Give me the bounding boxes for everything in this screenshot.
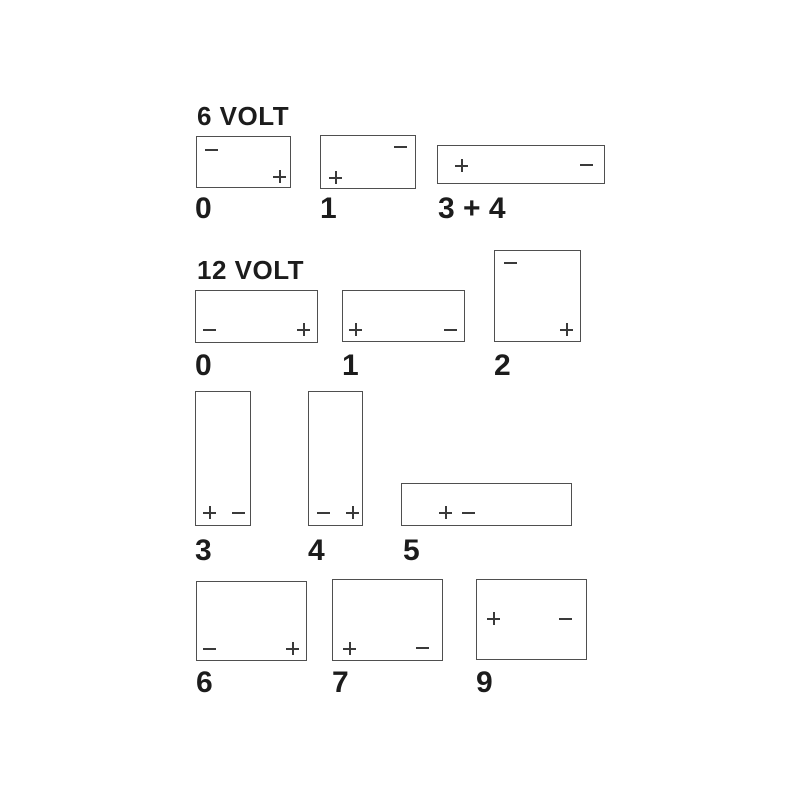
battery-box	[195, 391, 251, 526]
battery-box	[342, 290, 465, 342]
minus-terminal-icon	[416, 641, 429, 654]
minus-terminal-icon	[203, 642, 216, 655]
minus-terminal-icon	[462, 506, 475, 519]
plus-terminal-icon	[329, 171, 342, 184]
section-heading: 6 VOLT	[197, 103, 289, 129]
plus-terminal-icon	[439, 506, 452, 519]
plus-terminal-icon	[203, 506, 216, 519]
minus-terminal-icon	[205, 143, 218, 156]
plus-terminal-icon	[349, 323, 362, 336]
minus-terminal-icon	[580, 158, 593, 171]
battery-label: 3 + 4	[438, 194, 506, 224]
battery-label: 6	[196, 668, 213, 698]
plus-terminal-icon	[455, 159, 468, 172]
battery-label: 1	[320, 194, 337, 224]
battery-label: 1	[342, 351, 359, 381]
diagram-canvas: 6 VOLT013 + 412 VOLT012345679	[0, 0, 800, 800]
battery-label: 2	[494, 351, 511, 381]
battery-box	[195, 290, 318, 343]
battery-label: 0	[195, 194, 212, 224]
battery-box	[196, 581, 307, 661]
battery-box	[476, 579, 587, 660]
plus-terminal-icon	[297, 323, 310, 336]
battery-label: 5	[403, 536, 420, 566]
battery-box	[308, 391, 363, 526]
battery-box	[494, 250, 581, 342]
minus-terminal-icon	[232, 506, 245, 519]
plus-terminal-icon	[560, 323, 573, 336]
plus-terminal-icon	[487, 612, 500, 625]
battery-box	[401, 483, 572, 526]
plus-terminal-icon	[346, 506, 359, 519]
plus-terminal-icon	[273, 170, 286, 183]
battery-box	[320, 135, 416, 189]
battery-label: 9	[476, 668, 493, 698]
minus-terminal-icon	[559, 612, 572, 625]
battery-label: 3	[195, 536, 212, 566]
minus-terminal-icon	[203, 323, 216, 336]
plus-terminal-icon	[286, 642, 299, 655]
battery-label: 0	[195, 351, 212, 381]
minus-terminal-icon	[317, 506, 330, 519]
battery-label: 4	[308, 536, 325, 566]
minus-terminal-icon	[394, 140, 407, 153]
section-heading: 12 VOLT	[197, 257, 304, 283]
plus-terminal-icon	[343, 642, 356, 655]
minus-terminal-icon	[444, 323, 457, 336]
battery-label: 7	[332, 668, 349, 698]
minus-terminal-icon	[504, 256, 517, 269]
battery-box	[196, 136, 291, 188]
battery-box	[332, 579, 443, 661]
battery-box	[437, 145, 605, 184]
